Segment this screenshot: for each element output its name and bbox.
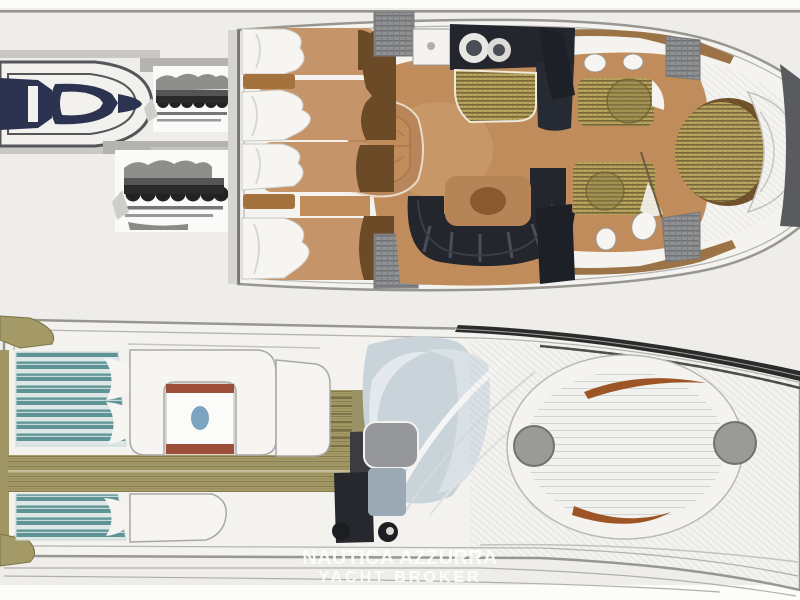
svg-text:YACHT BROKER: YACHT BROKER [318,569,481,586]
svg-text:NAUTICA AZZURRA: NAUTICA AZZURRA [302,547,497,569]
